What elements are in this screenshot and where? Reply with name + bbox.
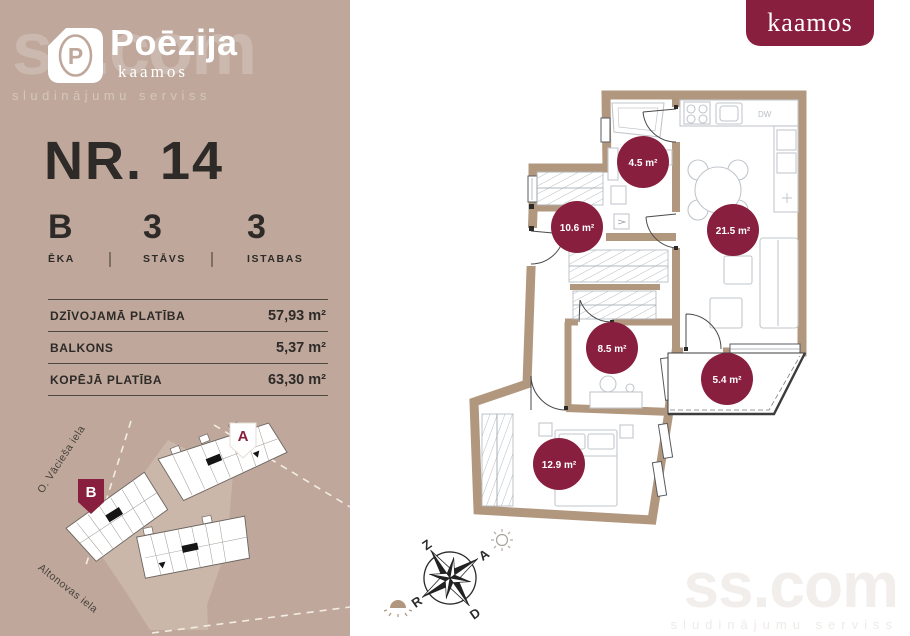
stat-floor-label: STĀVS <box>143 253 186 265</box>
project-name: Poēzija <box>110 22 238 64</box>
shaft-box <box>614 214 629 229</box>
room-area: 4.5 m² <box>629 158 659 169</box>
stat-rooms: 3 ISTABAS <box>247 210 304 265</box>
compass-south: D <box>467 605 483 623</box>
sunset-icon <box>384 600 412 617</box>
wardrobe <box>482 414 513 506</box>
building-a-pin-label: A <box>238 428 249 445</box>
street-name: Altonovas iela <box>36 562 100 616</box>
project-developer: kaamos <box>118 62 188 82</box>
room-area: 10.6 m² <box>560 223 595 234</box>
sun-icon <box>491 529 513 551</box>
pillow <box>588 434 614 449</box>
area-label: DZĪVOJAMĀ PLATĪBA <box>50 309 185 323</box>
armchair <box>724 256 752 284</box>
area-value: 57,93 m² <box>268 308 326 324</box>
stat-rooms-value: 3 <box>247 210 304 244</box>
nightstand <box>539 423 552 436</box>
unit-number: NR. 14 <box>44 130 224 192</box>
window <box>528 176 537 202</box>
area-value: 5,37 m² <box>276 340 326 356</box>
floorplan-drawing: DW <box>350 0 910 636</box>
compass-icon: Z A D R <box>385 512 517 636</box>
developer-logo-text: kaamos <box>767 8 852 38</box>
stat-building: B ĒKA <box>48 210 75 265</box>
area-value: 63,30 m² <box>268 372 326 388</box>
area-label: KOPĒJĀ PLATĪBA <box>50 373 162 387</box>
stat-rooms-label: ISTABAS <box>247 253 304 265</box>
table-row: BALKONS 5,37 m² <box>48 331 328 363</box>
window <box>601 118 610 142</box>
compass-star <box>403 531 498 626</box>
armchair <box>710 298 742 328</box>
stat-building-label: ĒKA <box>48 253 75 265</box>
info-panel: ss.com sludinājumu serviss P Poēzija kaa… <box>0 0 350 636</box>
listing-image: ss.com sludinājumu serviss P Poēzija kaa… <box>0 0 910 636</box>
developer-logo: kaamos <box>746 0 874 46</box>
sofa <box>760 238 798 328</box>
dishwasher-label: DW <box>758 110 772 119</box>
stat-divider <box>211 252 213 267</box>
stat-floor: 3 STĀVS <box>143 210 186 265</box>
watermark-subtitle: sludinājumu serviss <box>12 88 255 103</box>
compass-east: A <box>476 546 493 564</box>
room-area: 12.9 m² <box>542 460 577 471</box>
stat-floor-value: 3 <box>143 210 186 244</box>
project-logo-icon: P <box>47 27 104 84</box>
area-table: DZĪVOJAMĀ PLATĪBA 57,93 m² BALKONS 5,37 … <box>48 299 328 396</box>
closet <box>537 172 603 205</box>
room-area: 21.5 m² <box>716 226 751 237</box>
stat-building-value: B <box>48 210 75 244</box>
table-row: DZĪVOJAMĀ PLATĪBA 57,93 m² <box>48 299 328 331</box>
desk <box>590 392 642 408</box>
building-b-pin-label: B <box>86 484 97 501</box>
compass-west: R <box>409 593 426 611</box>
bath-shelf <box>608 148 618 180</box>
room-area: 8.5 m² <box>598 344 628 355</box>
table-row: KOPĒJĀ PLATĪBA 63,30 m² <box>48 363 328 396</box>
area-label: BALKONS <box>50 341 114 355</box>
nightstand <box>620 425 633 438</box>
site-plan: A B O. Vācieša iela Altonovas iela <box>0 395 350 636</box>
room-area: 5.4 m² <box>713 375 743 386</box>
washer <box>611 186 626 204</box>
floorplan-panel: kaamos ss.com sludinājumu serviss <box>350 0 910 636</box>
stat-divider <box>109 252 111 267</box>
compass-north: Z <box>419 536 434 553</box>
desk-chair <box>600 376 616 392</box>
project-logo: P <box>47 27 104 84</box>
logo-letter: P <box>68 43 83 69</box>
